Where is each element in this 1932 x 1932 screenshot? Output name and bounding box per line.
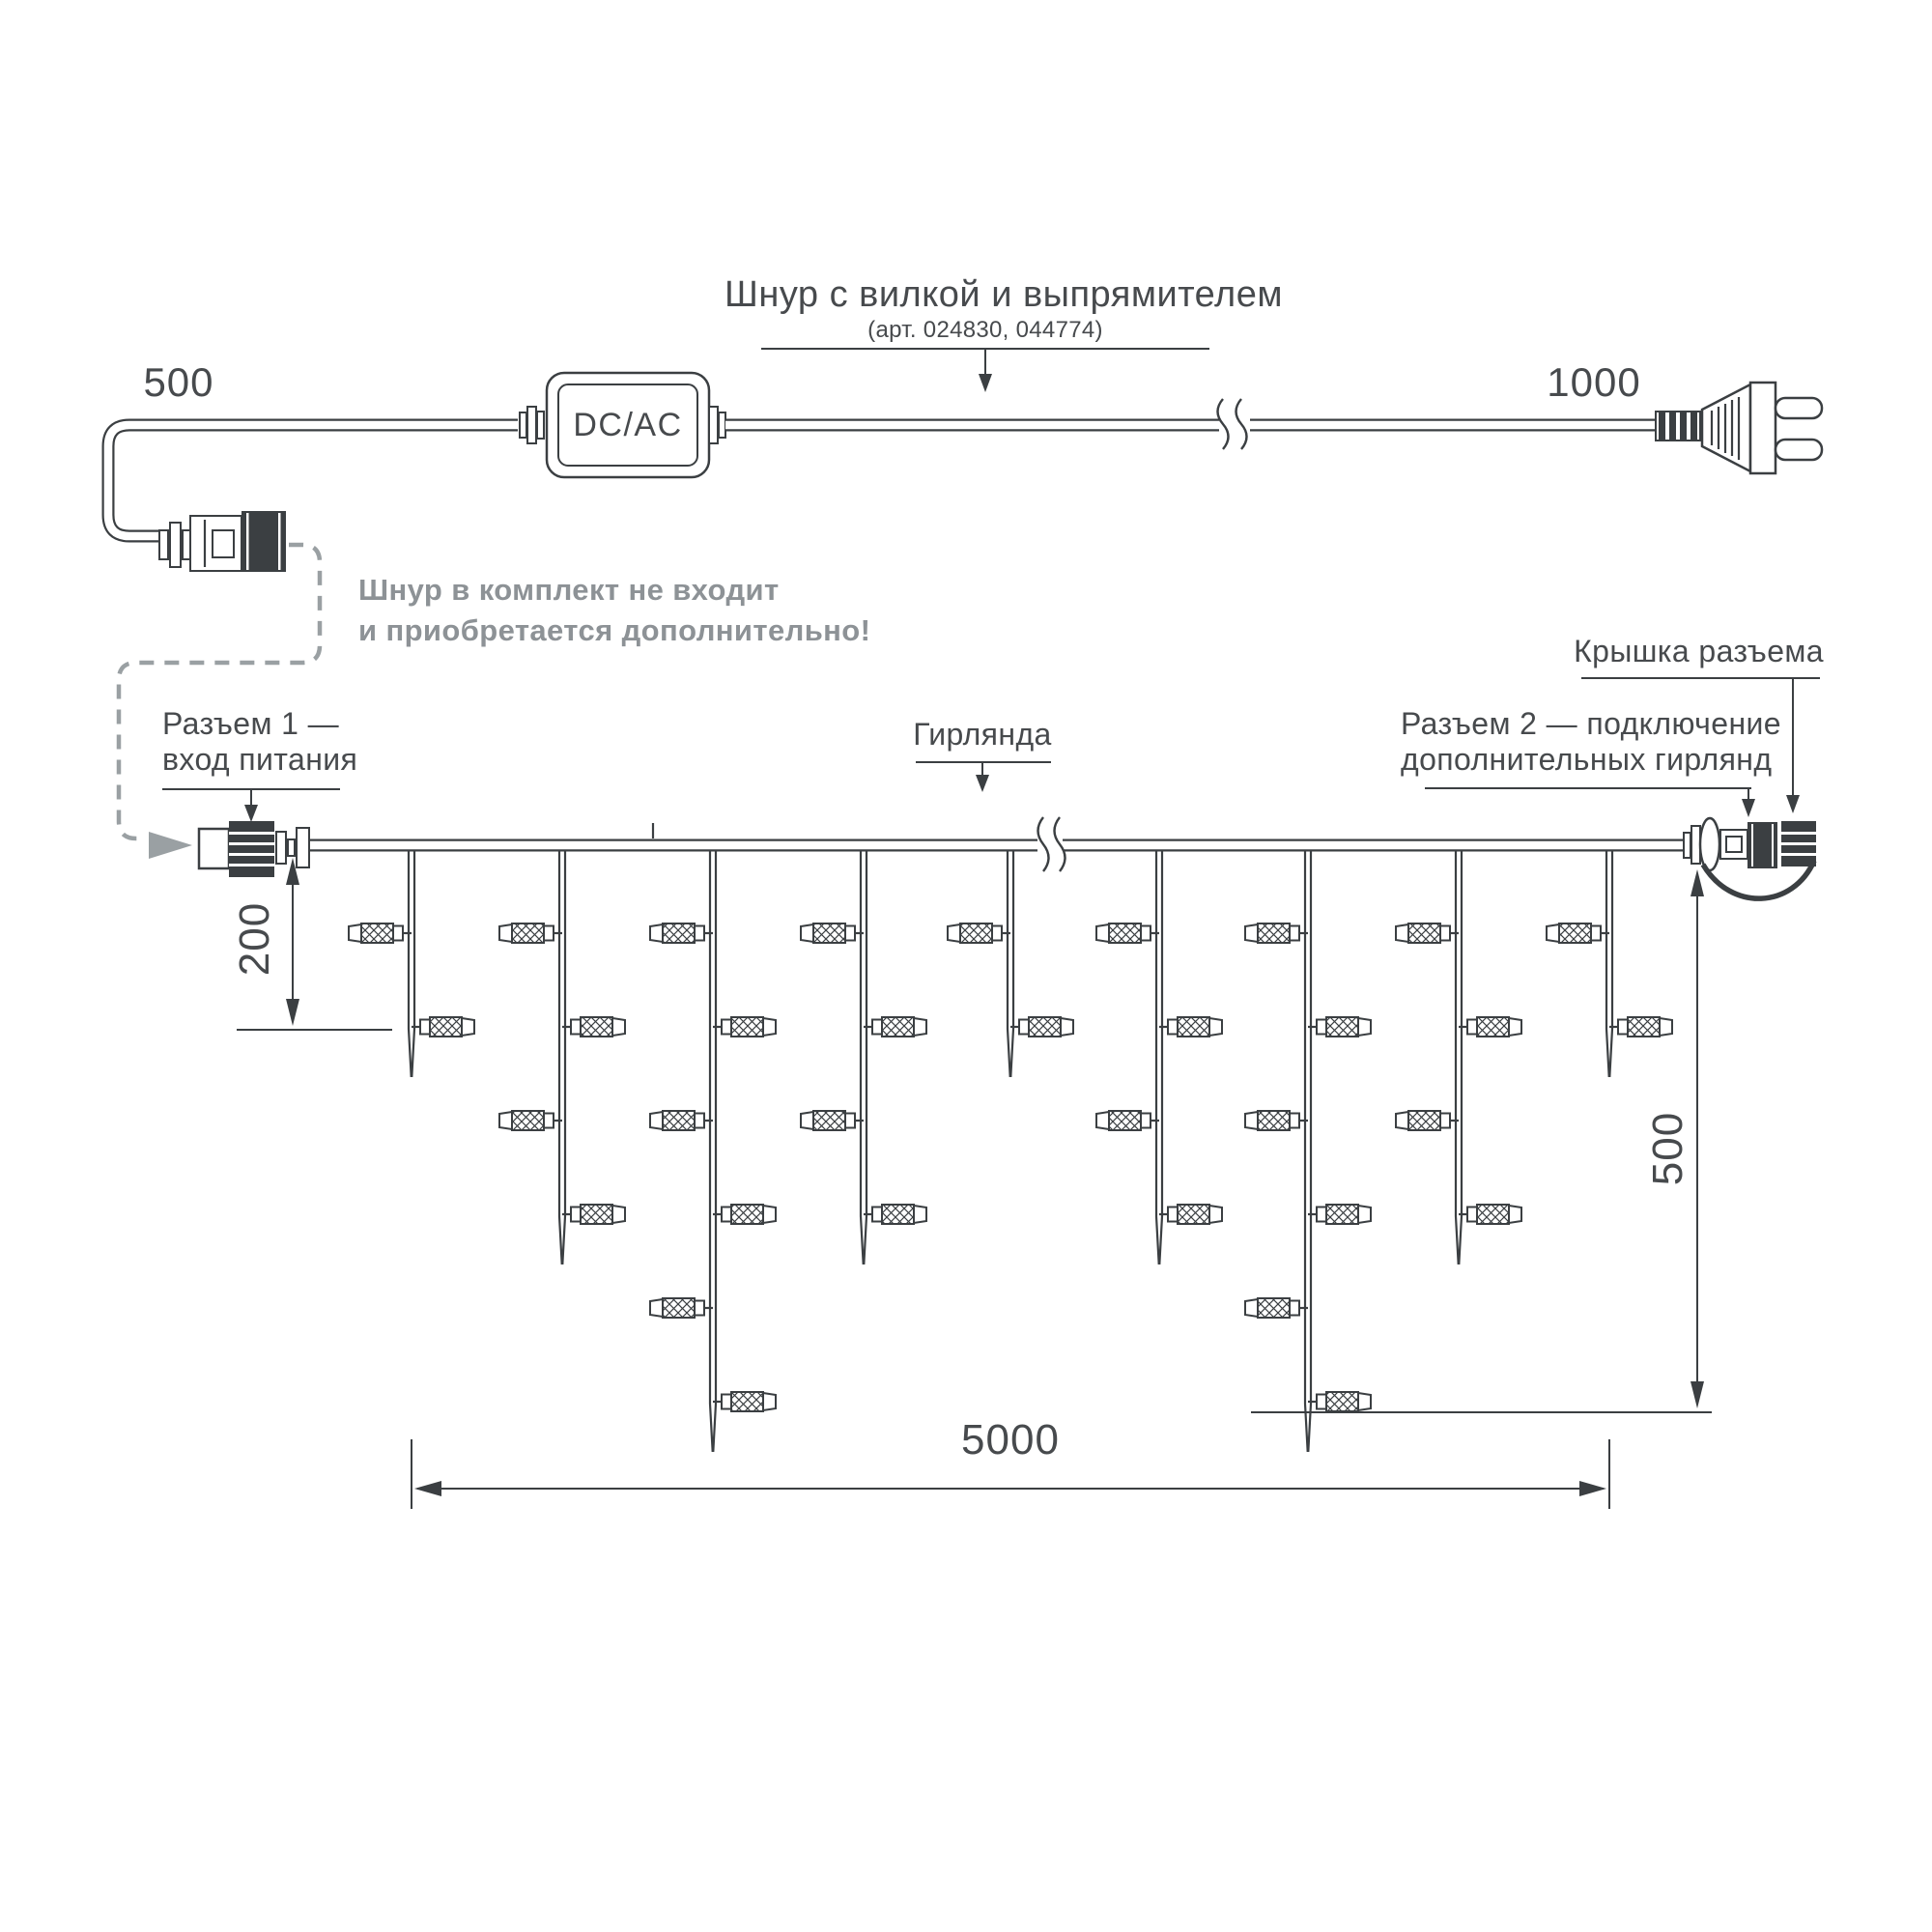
title-leader	[761, 349, 1209, 392]
led-bulb	[864, 1017, 926, 1037]
note-line2: и приобретается дополнительно!	[358, 613, 870, 648]
plug-prong	[1776, 440, 1822, 460]
note-line1: Шнур в комплект не входит	[358, 573, 780, 608]
garland-connector-2	[1684, 818, 1777, 870]
dimension-500	[1251, 869, 1712, 1412]
garland-drop	[801, 851, 926, 1264]
led-bulb	[1308, 1017, 1371, 1037]
led-bulb	[650, 1111, 713, 1130]
diagram-subtitle-articles: (арт. 024830, 044774)	[792, 317, 1179, 344]
connector1-leader	[162, 789, 340, 822]
garland-drop	[1096, 851, 1222, 1264]
icicle-garland-diagram: Шнур с вилкой и выпрямителем (арт. 02483…	[0, 0, 1932, 1932]
dashed-leader	[119, 545, 320, 859]
led-bulb	[562, 1017, 625, 1037]
dim-label-5000-length: 5000	[895, 1416, 1126, 1464]
led-bulb	[650, 923, 713, 943]
led-bulb	[1308, 1392, 1371, 1411]
garland-drop	[1547, 851, 1672, 1077]
led-bulb	[1609, 1017, 1672, 1037]
led-bulb	[1396, 1111, 1459, 1130]
garland-drop	[650, 851, 776, 1452]
led-bulb	[349, 923, 412, 943]
led-bulb	[650, 1298, 713, 1318]
led-bulb	[713, 1392, 776, 1411]
garland-drop	[349, 851, 474, 1077]
led-bulb	[1245, 1298, 1308, 1318]
dim-label-500-drop: 500	[1647, 1071, 1690, 1226]
plug-prong	[1776, 398, 1822, 418]
led-bulb	[713, 1205, 776, 1224]
garland-drop	[1245, 851, 1371, 1452]
diagram-title: Шнур с вилкой и выпрямителем	[724, 274, 1246, 316]
led-bulb	[713, 1017, 776, 1037]
connector2-label-line2: дополнительных гирлянд	[1401, 742, 1756, 778]
garland-drops	[349, 851, 1672, 1452]
power-plug	[1656, 383, 1822, 473]
led-bulb	[948, 923, 1010, 943]
led-bulb	[1010, 1017, 1073, 1037]
garland-label: Гирлянда	[886, 717, 1079, 753]
connector2-leader	[1425, 788, 1755, 817]
dim-label-1000-cord: 1000	[1536, 359, 1652, 406]
led-bulb	[562, 1205, 625, 1224]
cap-label: Крышка разъема	[1573, 634, 1824, 669]
led-bulb	[864, 1205, 926, 1224]
connector2-label-line1: Разъем 2 — подключение	[1401, 706, 1756, 742]
garland-label-leader	[916, 762, 1051, 792]
garland-drop	[948, 851, 1073, 1077]
power-cord-left	[108, 425, 518, 536]
led-bulb	[1096, 923, 1159, 943]
led-bulb	[801, 1111, 864, 1130]
power-cord-connector	[159, 511, 286, 572]
led-bulb	[499, 1111, 562, 1130]
garland-drop	[499, 851, 625, 1264]
led-bulb	[412, 1017, 474, 1037]
converter-label: DC/AC	[558, 384, 697, 466]
led-bulb	[499, 923, 562, 943]
led-bulb	[1459, 1017, 1521, 1037]
led-bulb	[801, 923, 864, 943]
wire-break-symbol	[1038, 817, 1065, 871]
led-bulb	[1308, 1205, 1371, 1224]
dim-label-200-drop: 200	[234, 862, 276, 1016]
led-bulb	[1245, 923, 1308, 943]
led-bulb	[1096, 1111, 1159, 1130]
led-bulb	[1245, 1111, 1308, 1130]
led-bulb	[1547, 923, 1609, 943]
dim-label-500-cord: 500	[121, 359, 237, 406]
led-bulb	[1396, 923, 1459, 943]
led-bulb	[1159, 1205, 1222, 1224]
garland-drop	[1396, 851, 1521, 1264]
cord-break-symbol	[1218, 399, 1247, 449]
connector1-label-line1: Разъем 1 —	[162, 706, 339, 742]
led-bulb	[1159, 1017, 1222, 1037]
led-bulb	[1459, 1205, 1521, 1224]
connector1-label-line2: вход питания	[162, 742, 357, 778]
